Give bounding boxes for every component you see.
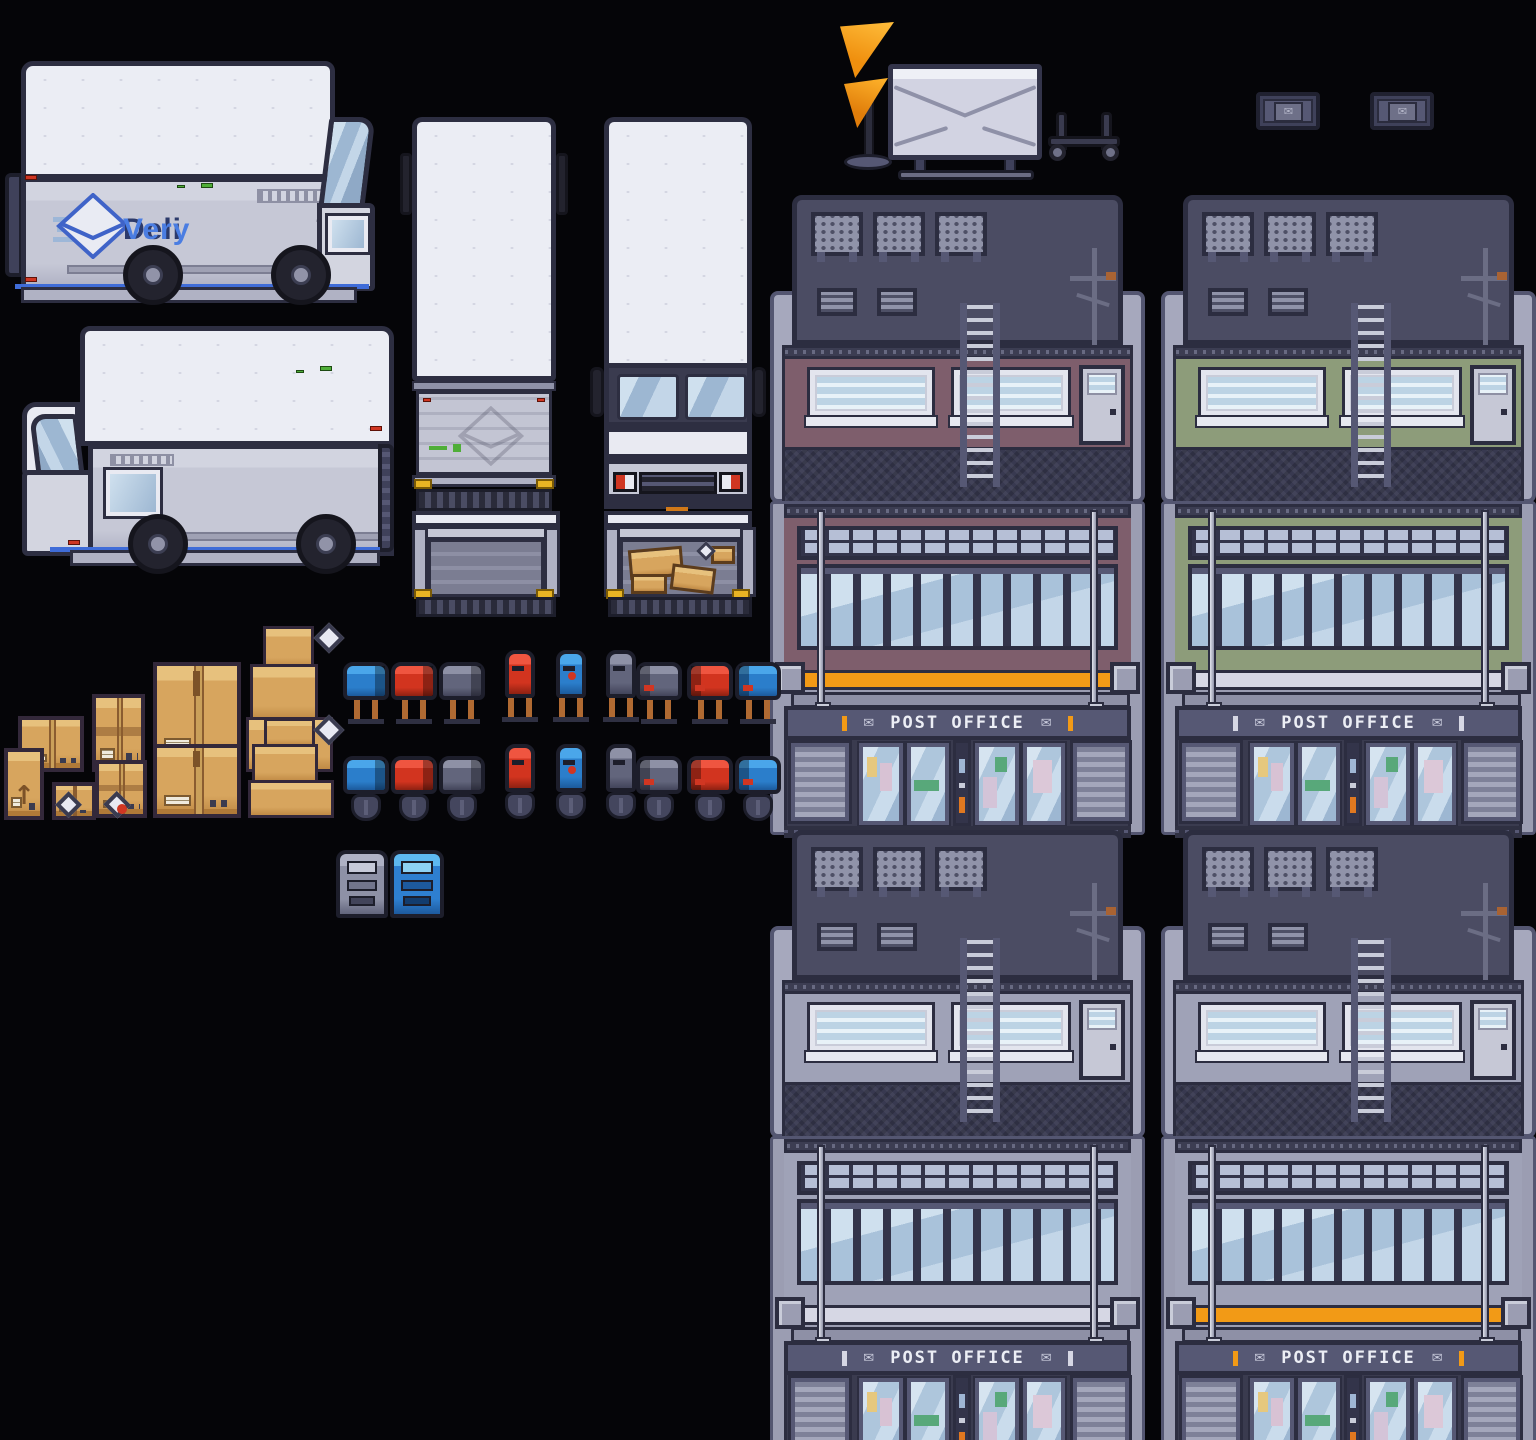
mailbox-blue-front (556, 650, 586, 724)
awning-tick (842, 1351, 847, 1366)
post-office-awning: ✉ POST OFFICE ✉ (1175, 706, 1522, 740)
building-post-office-top-right: ✉ POST OFFICE ✉ (1161, 195, 1536, 835)
storefront (1175, 740, 1522, 826)
antenna-icon (1070, 883, 1116, 987)
upper-window (807, 1002, 935, 1054)
mailbox-blue-side-left (735, 756, 781, 820)
bumper-tread (416, 489, 552, 511)
package-envelope-stamped (104, 788, 138, 832)
post-office-awning: ✉ POST OFFICE ✉ (784, 1341, 1131, 1375)
door-window (1478, 1008, 1508, 1030)
awning-tick (842, 716, 847, 731)
shutter-panel (1182, 743, 1240, 821)
accent-stripe (784, 1305, 1131, 1325)
mailbox-post-legs (346, 700, 386, 724)
pinned-envelope (313, 714, 344, 745)
envelope-icon: ✉ (1432, 716, 1443, 731)
tail-light (370, 426, 382, 431)
envelope-logo-icon (455, 406, 525, 466)
door-jamb (604, 527, 620, 597)
envelope-logo-icon (53, 193, 131, 259)
sign-foot-bar (898, 170, 1034, 180)
post-office-sign: POST OFFICE (890, 1348, 1025, 1368)
shutter-panel (1464, 743, 1520, 821)
storefront-section: ✉ POST OFFICE ✉ (1161, 501, 1536, 835)
shutter-panel (791, 1378, 849, 1440)
envelope-edge (893, 69, 1037, 79)
mailbox-post-legs (601, 698, 641, 722)
mesh-wall (782, 447, 1133, 505)
stripe-end-cap (1110, 662, 1140, 694)
accent-stripe (1175, 670, 1522, 690)
door-knob (1110, 409, 1116, 415)
hood (604, 427, 752, 459)
mailbox-pedestal (447, 794, 477, 821)
building-rooftop (792, 830, 1123, 980)
front-bumper (604, 459, 752, 499)
envelope-flap-line (894, 85, 968, 118)
roof-vent-icon (1268, 923, 1308, 951)
building-rooftop (1183, 195, 1514, 345)
head-light (68, 540, 80, 545)
door-jamb (740, 527, 756, 597)
ac-unit-icon (811, 847, 863, 891)
cab-window (106, 470, 160, 516)
envelope-icon: ✉ (1254, 1351, 1265, 1366)
building-rooftop (792, 195, 1123, 345)
mailbox-gray-front (606, 650, 636, 724)
truck-vent-grille (257, 189, 323, 203)
green-dash (429, 446, 447, 450)
awning-tick (1233, 716, 1238, 731)
roof-vent-icon (1268, 288, 1308, 316)
storefront (1175, 1375, 1522, 1440)
post-office-awning: ✉ POST OFFICE ✉ (1175, 1341, 1522, 1375)
pinned-envelope (313, 623, 344, 654)
roof-vent-icon (877, 923, 917, 951)
shutter-panel (791, 743, 849, 821)
storefront-section: ✉ POST OFFICE ✉ (770, 1136, 1145, 1440)
mailbox-gray-front (606, 744, 636, 818)
loaded-cargo-bay (620, 539, 740, 597)
parcel-locker-gray (336, 850, 388, 918)
upper-floor-facade (782, 359, 1133, 447)
head-light (613, 472, 637, 492)
mailbox-gray-side-right (439, 756, 485, 820)
stripe-end-cap (1166, 662, 1196, 694)
roof-vent-icon (1208, 923, 1248, 951)
awning-tick (1068, 1351, 1073, 1366)
building-post-office-bottom-left: ✉ POST OFFICE ✉ (770, 830, 1145, 1440)
cargo-roof-top (604, 117, 752, 381)
storefront-door (953, 740, 971, 826)
door-window (1087, 1008, 1117, 1030)
stripe-end-cap (775, 1297, 805, 1329)
mesh-wall (1173, 1082, 1524, 1140)
door-knob (1501, 409, 1507, 415)
accent-stripe (1175, 1305, 1522, 1325)
cart-wheel (1102, 144, 1119, 161)
envelope-icon: ✉ (1388, 102, 1417, 122)
ac-unit-icon (1264, 212, 1316, 256)
mailbox-post-legs (690, 700, 730, 724)
storefront (784, 1375, 1131, 1440)
tail-light (537, 398, 545, 402)
mailbox-post-legs (394, 700, 434, 724)
roof-edge (412, 511, 560, 527)
envelope-sign (886, 58, 1046, 182)
ladder (1351, 303, 1391, 487)
building-post-office-bottom-right: ✉ POST OFFICE ✉ (1161, 830, 1536, 1440)
storefront-window (907, 743, 949, 825)
door-knob (1110, 1044, 1116, 1050)
window-row (1188, 564, 1509, 650)
mailbox-red-side-right (391, 756, 437, 820)
locker-window (347, 861, 377, 874)
door-jamb (544, 527, 560, 597)
locker-slot (349, 896, 375, 906)
tail-light (423, 398, 431, 402)
wheel (296, 514, 356, 574)
cornice (782, 345, 1133, 359)
ac-unit-icon (873, 847, 925, 891)
storefront-window (1414, 1378, 1456, 1440)
envelope-icon: ✉ (1432, 1351, 1443, 1366)
ac-unit-icon (873, 212, 925, 256)
storefront-window (859, 743, 903, 825)
van-cab (22, 470, 96, 556)
stripe-end-cap (1110, 1297, 1140, 1329)
stripe-end-cap (1501, 1297, 1531, 1329)
door-window (1478, 373, 1508, 395)
marker-light (320, 366, 332, 371)
upper-floor-facade (1173, 994, 1524, 1082)
package-envelope (56, 788, 88, 832)
canopy-pole (817, 1145, 825, 1343)
building-rooftop (1183, 830, 1514, 980)
storefront-window (1366, 743, 1410, 825)
roof-edge (604, 511, 752, 527)
cargo-parcel (631, 574, 667, 594)
cargo-roof-top (412, 117, 556, 381)
envelope-icon: ✉ (863, 716, 874, 731)
canopy-pole (1208, 1145, 1216, 1343)
mailbox-post-legs (551, 698, 591, 722)
bumper-tread (608, 597, 752, 617)
transom-windows (1188, 1161, 1509, 1195)
windshield-glass (685, 374, 747, 420)
upper-window (1198, 367, 1326, 419)
storefront-window (1250, 743, 1294, 825)
mailbox-pedestal (644, 794, 674, 821)
storefront-window (1250, 1378, 1294, 1440)
envelope-plaque: ✉ (1370, 92, 1434, 130)
mailbox-red-side-right (391, 662, 437, 726)
locker-slot (403, 896, 431, 906)
mailbox-pedestal (505, 792, 535, 819)
ac-unit-icon (811, 212, 863, 256)
package-large-box (153, 744, 241, 818)
windshield-top (604, 363, 752, 427)
canopy-pole (1090, 1145, 1098, 1343)
antenna-icon (1070, 248, 1116, 352)
upper-window (1198, 1002, 1326, 1054)
van-vent-grille (110, 454, 174, 466)
upper-door (1470, 1000, 1516, 1080)
shutter-panel (1182, 1378, 1240, 1440)
envelope-icon: ✉ (863, 1351, 874, 1366)
mailbox-post-legs (500, 698, 540, 722)
roof-vent-icon (817, 288, 857, 316)
side-step (400, 153, 412, 215)
mailbox-pedestal (351, 794, 381, 821)
storefront-window (1023, 743, 1065, 825)
bumper-tread (416, 597, 556, 617)
mailbox-blue-side-right (343, 662, 389, 726)
ac-unit-icon (935, 212, 987, 256)
truck-cargo-roof (21, 61, 335, 179)
storefront-section: ✉ POST OFFICE ✉ (770, 501, 1145, 835)
envelope-icon: ✉ (1041, 716, 1052, 731)
post-office-sign: POST OFFICE (890, 713, 1025, 733)
mailbox-post-legs (639, 700, 679, 724)
antenna-icon (1461, 883, 1507, 987)
parcel-locker-blue (390, 850, 444, 918)
cornice (784, 1139, 1131, 1153)
storefront-window (1298, 1378, 1340, 1440)
ac-unit-icon (1202, 847, 1254, 891)
awning-tick (1459, 716, 1464, 731)
stripe-end-cap (1501, 662, 1531, 694)
upper-floor-facade (782, 994, 1133, 1082)
side-mirror (590, 367, 604, 417)
door-header (412, 527, 560, 539)
envelope-icon: ✉ (1254, 716, 1265, 731)
cargo-parcel (670, 563, 717, 594)
door-header (604, 527, 752, 539)
mailbox-blue-front (556, 744, 586, 818)
head-light (719, 472, 743, 492)
wheel (271, 245, 331, 305)
transom-windows (797, 526, 1118, 560)
cornice (782, 980, 1133, 994)
ladder (960, 938, 1000, 1122)
storefront-section: ✉ POST OFFICE ✉ (1161, 1136, 1536, 1440)
storefront-door (1344, 1375, 1362, 1440)
upper-door (1470, 365, 1516, 445)
box-truck-top-down-front (600, 113, 756, 615)
package-box-stack (248, 718, 338, 818)
van-cargo-roof (80, 326, 394, 446)
envelope-icon: ✉ (1274, 102, 1303, 122)
mailbox-pedestal (743, 794, 773, 821)
storefront-door (953, 1375, 971, 1440)
marker-light (296, 370, 304, 373)
cornice (784, 504, 1131, 518)
post-office-awning: ✉ POST OFFICE ✉ (784, 706, 1131, 740)
corner-marker (536, 479, 554, 489)
storefront-window (1023, 1378, 1065, 1440)
antenna-icon (1461, 248, 1507, 352)
envelope-fold-line (894, 126, 948, 147)
canopy-pole (1090, 510, 1098, 708)
storefront-door (1344, 740, 1362, 826)
ac-unit-icon (935, 847, 987, 891)
cornice (1175, 1139, 1522, 1153)
ac-unit-icon (1326, 847, 1378, 891)
stripe-end-cap (1166, 1297, 1196, 1329)
storefront-window (1414, 743, 1456, 825)
awning-tick (1459, 1351, 1464, 1366)
storefront-window (975, 743, 1019, 825)
rear-skirt (412, 475, 556, 487)
mailbox-blue-side-right (343, 756, 389, 820)
canopy-pole (817, 510, 825, 708)
roof-vent-icon (877, 288, 917, 316)
mailbox-pedestal (695, 794, 725, 821)
delivery-van-side-left (10, 318, 394, 576)
envelope-flap-line (963, 85, 1037, 118)
locker-window (401, 861, 433, 874)
cornice (1175, 504, 1522, 518)
mailbox-post-legs (442, 700, 482, 724)
marker-light (201, 183, 213, 188)
ac-unit-icon (1326, 212, 1378, 256)
door-window (1087, 373, 1117, 395)
cargo-parcel (711, 546, 735, 564)
mailbox-post-legs (738, 700, 778, 724)
awning-tick (1233, 1351, 1238, 1366)
awning-tick (1068, 716, 1073, 731)
transom-windows (797, 1161, 1118, 1195)
upper-window (807, 367, 935, 419)
tail-light (25, 277, 37, 282)
post-office-sign: POST OFFICE (1281, 713, 1416, 733)
mailbox-gray-side-left (636, 756, 682, 820)
roof-vent-icon (817, 923, 857, 951)
wheel (123, 245, 183, 305)
ac-unit-icon (1264, 847, 1316, 891)
transom-windows (1188, 526, 1509, 560)
door-jamb (412, 527, 428, 597)
window-row (1188, 1199, 1509, 1285)
mailbox-red-side-left (687, 756, 733, 820)
corner-marker (414, 479, 432, 489)
hand-cart (1048, 112, 1120, 170)
envelope-plaque: ✉ (1256, 92, 1320, 130)
roof-hinge (412, 381, 556, 391)
van-rear-bumper (378, 444, 394, 552)
mailbox-gray-side-right (439, 662, 485, 726)
box-truck-rear-open-loaded (600, 511, 756, 615)
mailbox-blue-side-left (735, 662, 781, 726)
envelope-fold-line (982, 126, 1036, 147)
empty-cargo-bay (428, 539, 544, 597)
mailbox-red-front (505, 744, 535, 818)
marker-light (177, 185, 185, 188)
storefront-window (975, 1378, 1019, 1440)
storefront-window (1298, 743, 1340, 825)
mesh-wall (782, 1082, 1133, 1140)
mailbox-gray-side-left (636, 662, 682, 726)
ac-unit-icon (1202, 212, 1254, 256)
box-truck-top-down-rear (408, 113, 560, 615)
window-row (797, 1199, 1118, 1285)
upper-door (1079, 1000, 1125, 1080)
storefront-window (1366, 1378, 1410, 1440)
box-truck-rear-open-empty (408, 511, 560, 615)
cornice (1173, 980, 1524, 994)
wheel (128, 514, 188, 574)
shutter-panel (1464, 1378, 1520, 1440)
upper-floor-facade (1173, 359, 1524, 447)
ladder (960, 303, 1000, 487)
sign-base (844, 154, 892, 170)
building-post-office-top-left: ✉ POST OFFICE ✉ (770, 195, 1145, 835)
storefront-window (859, 1378, 903, 1440)
mailbox-pedestal (556, 792, 586, 819)
mesh-wall (1173, 447, 1524, 505)
mailbox-red-front (505, 650, 535, 724)
cornice (1173, 345, 1524, 359)
canopy-pole (1481, 1145, 1489, 1343)
side-step (556, 153, 568, 215)
locker-panel (347, 880, 377, 891)
green-plus (453, 444, 461, 452)
storefront (784, 740, 1131, 826)
locker-panel (401, 880, 433, 891)
side-mirror (752, 367, 766, 417)
mailbox-pedestal (606, 792, 636, 819)
package-tall-box: ↑ (4, 748, 44, 820)
upper-door (1079, 365, 1125, 445)
storefront-window (907, 1378, 949, 1440)
rear-roll-door (416, 391, 552, 475)
canopy-pole (1481, 510, 1489, 708)
canopy-pole (1208, 510, 1216, 708)
envelope-icon (888, 64, 1042, 160)
mailbox-pedestal (399, 794, 429, 821)
roof-vent-icon (1208, 288, 1248, 316)
ladder (1351, 938, 1391, 1122)
post-office-sign: POST OFFICE (1281, 1348, 1416, 1368)
shutter-panel (1073, 1378, 1129, 1440)
delivery-truck-side-right: DeliVery (5, 55, 377, 305)
shutter-panel (1073, 743, 1129, 821)
accent-stripe (784, 670, 1131, 690)
sprite-sheet-canvas: DeliVery (0, 0, 1536, 1440)
window-row (797, 564, 1118, 650)
grille (639, 472, 717, 494)
tail-light (25, 175, 37, 180)
windshield-glass (617, 374, 679, 420)
cab-window (328, 216, 368, 252)
door-knob (1501, 1044, 1507, 1050)
envelope-icon: ✉ (1041, 1351, 1052, 1366)
cart-wheel (1049, 144, 1066, 161)
mailbox-red-side-left (687, 662, 733, 726)
